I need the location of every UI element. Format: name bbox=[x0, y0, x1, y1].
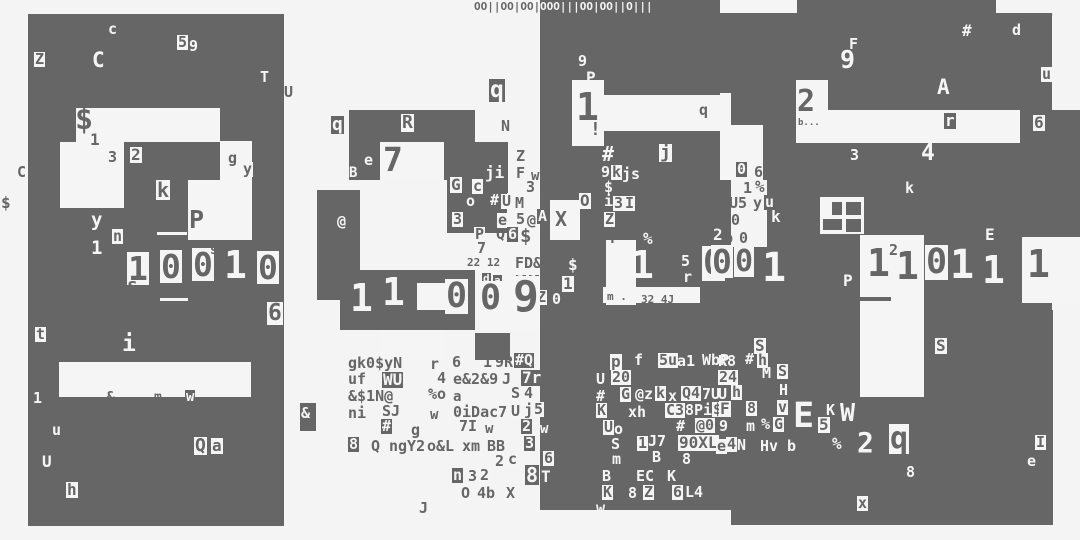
glyph: xh bbox=[628, 405, 646, 420]
glyph: 2 bbox=[479, 468, 490, 483]
glyph: e bbox=[1027, 454, 1036, 469]
dark-block bbox=[859, 297, 891, 301]
glyph: X bbox=[555, 209, 567, 229]
glyph: 6 bbox=[543, 451, 554, 466]
glyph: # bbox=[602, 144, 614, 164]
glyph: 6 bbox=[754, 165, 763, 180]
glyph: B bbox=[652, 450, 661, 465]
glyph: 1 bbox=[382, 273, 405, 311]
glyph: uf bbox=[348, 372, 366, 387]
glyph: 1 bbox=[350, 279, 373, 317]
glyph: 3 bbox=[850, 148, 859, 163]
glyph: m bbox=[746, 419, 755, 434]
glyph: q bbox=[489, 79, 505, 102]
glyph: 5 bbox=[818, 417, 830, 433]
glyph: 0 bbox=[736, 162, 747, 177]
glyph: # bbox=[962, 23, 972, 39]
glyph: 2 bbox=[521, 419, 532, 434]
barcode-text: OOO|||OO|OO||O||| bbox=[540, 1, 653, 12]
glyph: 32 4J bbox=[641, 294, 674, 305]
glyph: 90XL bbox=[678, 435, 719, 451]
glyph: 1 bbox=[631, 246, 654, 284]
glyph: c bbox=[507, 452, 518, 467]
glyph: 3 bbox=[613, 196, 624, 211]
glyph: 4 bbox=[523, 386, 534, 401]
window-pane-rect bbox=[846, 202, 861, 215]
glyph: 6 bbox=[672, 485, 683, 500]
glyph: 0 bbox=[445, 279, 468, 314]
glyph: 1 bbox=[896, 247, 919, 285]
glyph: A bbox=[937, 77, 950, 98]
glyph: & bbox=[301, 406, 310, 421]
glyph: N bbox=[501, 119, 510, 134]
glyph: n bbox=[112, 229, 123, 244]
glyph: 1 bbox=[950, 245, 974, 285]
glyph: 4b bbox=[477, 486, 495, 501]
glyph: t bbox=[766, 226, 778, 246]
glyph: #Q bbox=[514, 353, 534, 368]
glyph: 8 bbox=[906, 465, 915, 480]
glyph: X bbox=[506, 486, 515, 501]
glyph: J7 bbox=[648, 434, 666, 449]
glyph: Q4 bbox=[681, 386, 701, 401]
light-block bbox=[160, 298, 188, 301]
glyph: %o bbox=[428, 387, 446, 402]
glyph: 9 bbox=[512, 276, 540, 319]
glyph: 9 bbox=[719, 419, 728, 434]
glyph: 7I bbox=[459, 419, 477, 434]
glyph: C bbox=[92, 50, 105, 71]
light-block bbox=[417, 283, 448, 310]
glyph: I bbox=[624, 196, 635, 211]
glyph: WU bbox=[382, 372, 403, 388]
glyph: j bbox=[659, 144, 672, 162]
glyph: 8 bbox=[525, 465, 539, 485]
glyph: @ bbox=[526, 213, 537, 228]
glyph: L4 bbox=[685, 485, 703, 500]
glyph: q bbox=[699, 103, 708, 118]
glyph: @0 bbox=[695, 418, 715, 433]
glyph: $ bbox=[568, 257, 578, 273]
glyph: 9 bbox=[578, 54, 587, 69]
glyph: 22 12 bbox=[467, 257, 500, 268]
glyph: k bbox=[156, 180, 170, 200]
glyph: y bbox=[91, 211, 102, 230]
glyph: 1 bbox=[637, 436, 648, 451]
glyph: 2 bbox=[495, 454, 504, 469]
glyph: 5 bbox=[177, 35, 188, 50]
glyph: w bbox=[485, 422, 493, 436]
glyph: w bbox=[430, 408, 438, 422]
glyph: 4 bbox=[921, 142, 935, 165]
glyph: j bbox=[524, 403, 533, 418]
glyph: x bbox=[857, 496, 868, 511]
glyph: 1 bbox=[762, 248, 786, 288]
glyph: s bbox=[127, 277, 138, 295]
glyph: 0 bbox=[734, 247, 754, 277]
glyph: # bbox=[381, 419, 392, 434]
glyph: 1 bbox=[483, 355, 492, 370]
glyph: % bbox=[761, 417, 770, 432]
glyph: 1 bbox=[89, 132, 101, 148]
glyph: f bbox=[634, 353, 643, 368]
glyph: 0 bbox=[711, 245, 733, 278]
glyph: e bbox=[364, 153, 373, 168]
glyph: U bbox=[596, 372, 605, 387]
light-block bbox=[720, 93, 731, 180]
glyph: i bbox=[122, 333, 136, 356]
glyph: 8 bbox=[682, 452, 691, 467]
glyph: % bbox=[755, 179, 765, 195]
glyph: S bbox=[511, 386, 520, 401]
glyph: P bbox=[189, 207, 204, 232]
barcode-text: gk0$yN bbox=[348, 356, 402, 371]
glyph: q bbox=[889, 424, 909, 454]
glyph: FD&A bbox=[515, 256, 551, 271]
glyph: G bbox=[773, 417, 784, 432]
glyph: E bbox=[985, 227, 995, 243]
glyph: 4 bbox=[436, 371, 447, 386]
glyph: Z bbox=[643, 485, 654, 500]
glyph: U bbox=[510, 404, 521, 419]
glyph: P bbox=[842, 273, 854, 289]
glyph: 3 bbox=[468, 469, 477, 484]
glyph: 2 bbox=[797, 87, 815, 117]
glyph: t bbox=[35, 327, 46, 342]
glyph: @z bbox=[635, 387, 653, 402]
glyph: 5u bbox=[658, 353, 678, 368]
glyph: e&2&9 bbox=[453, 372, 498, 387]
glyph: 2 bbox=[857, 429, 874, 457]
glyph: m bbox=[154, 391, 162, 404]
glyph: @ bbox=[337, 214, 346, 229]
glyph: M bbox=[515, 196, 524, 211]
glyph: o&L bbox=[427, 439, 454, 454]
glyph: U bbox=[42, 454, 52, 470]
glyph: K bbox=[667, 469, 676, 484]
glyph: n bbox=[452, 468, 463, 483]
glyph: # bbox=[490, 193, 499, 208]
glyph: 0 bbox=[160, 250, 182, 283]
glyph: R8 bbox=[718, 354, 736, 369]
glyph: h bbox=[731, 385, 742, 400]
glyph: q bbox=[331, 116, 344, 134]
glyph: B bbox=[349, 166, 357, 180]
glyph: h bbox=[66, 482, 78, 498]
glyph: ! bbox=[590, 121, 601, 139]
glyph: k bbox=[905, 181, 914, 196]
glyph: w bbox=[540, 422, 548, 436]
glyph: u bbox=[52, 423, 61, 438]
glyph: 0 bbox=[925, 245, 948, 280]
glyph: 1 bbox=[982, 251, 1005, 289]
glyph: 5 bbox=[681, 254, 690, 269]
glyph: r bbox=[683, 270, 692, 285]
glyph: a bbox=[211, 438, 223, 454]
glyph: R bbox=[401, 114, 414, 132]
glyph: 1 bbox=[562, 276, 574, 292]
glyph: m bbox=[612, 452, 621, 467]
glyph: 5 bbox=[516, 212, 525, 227]
glyph: S bbox=[935, 338, 947, 354]
glyph: d bbox=[1012, 23, 1021, 38]
glyph: b bbox=[787, 439, 796, 454]
glyph: 3 bbox=[452, 212, 463, 227]
glyph: T bbox=[541, 469, 551, 485]
glyph: 3 bbox=[526, 180, 535, 195]
glyph: I bbox=[1035, 435, 1046, 450]
glyph: F bbox=[768, 165, 777, 180]
glyph: F bbox=[516, 166, 525, 181]
light-block bbox=[157, 232, 187, 235]
glyph: ngY2 bbox=[389, 439, 425, 454]
glyph: 9R bbox=[495, 355, 513, 370]
glyph: & bbox=[106, 390, 115, 405]
glyph: J bbox=[419, 501, 428, 516]
glyph: v bbox=[1044, 11, 1053, 26]
glyph: Z bbox=[604, 212, 615, 227]
glyph: 20 bbox=[611, 370, 631, 385]
glyph: v bbox=[777, 400, 788, 415]
glyph: I bbox=[540, 229, 549, 244]
glyph: 6 bbox=[452, 355, 461, 370]
glyph: S bbox=[777, 364, 788, 379]
glyph: % bbox=[643, 231, 653, 247]
glyph: T bbox=[260, 70, 269, 85]
glyph: 5 bbox=[533, 402, 544, 417]
glyph: y bbox=[753, 196, 762, 211]
glyph: w bbox=[185, 390, 195, 404]
glyph: U5 bbox=[729, 196, 747, 211]
glyph: 0 bbox=[552, 292, 561, 307]
glyph: 7 bbox=[477, 241, 486, 256]
glyph: k bbox=[770, 209, 782, 225]
glyph: G bbox=[450, 177, 462, 193]
glyph: r bbox=[944, 113, 956, 129]
glyph: ni bbox=[348, 406, 366, 421]
glyph: 0 bbox=[257, 251, 279, 284]
glyph: Z bbox=[34, 52, 45, 67]
glyph: 3 bbox=[108, 150, 117, 165]
glyph: U bbox=[284, 85, 293, 100]
glyph: 7 bbox=[383, 143, 403, 176]
glyph: Q bbox=[371, 439, 380, 454]
glyph: c bbox=[108, 22, 117, 37]
light-block bbox=[604, 95, 731, 131]
glyph: O bbox=[461, 486, 470, 501]
glyph: 1 bbox=[224, 246, 247, 284]
glyph: U bbox=[603, 420, 614, 435]
glyph: k bbox=[655, 386, 666, 401]
glyph: F bbox=[610, 231, 619, 246]
glyph: B bbox=[602, 469, 611, 484]
glyph: 6 bbox=[507, 227, 518, 242]
glyph: # bbox=[676, 419, 685, 434]
glyph: g bbox=[411, 423, 420, 438]
glyph: 9 bbox=[840, 47, 855, 72]
glyph: # bbox=[745, 352, 754, 367]
glyph: w bbox=[596, 501, 605, 516]
glyph: U bbox=[501, 194, 512, 209]
glyph: M bbox=[762, 366, 771, 381]
glyph: H bbox=[779, 383, 788, 398]
glyph: G bbox=[620, 387, 631, 402]
glyph: 0 bbox=[731, 213, 740, 228]
glyph: 4 bbox=[726, 437, 737, 452]
glyph: P bbox=[586, 70, 596, 86]
glyph: 1 bbox=[1027, 245, 1050, 283]
glyph: y bbox=[242, 162, 253, 177]
glyph: 0 bbox=[479, 281, 502, 316]
glyph: % bbox=[832, 436, 842, 452]
glyph: Z bbox=[516, 149, 525, 164]
glyph: 9 bbox=[189, 39, 198, 54]
glyph: o bbox=[466, 194, 475, 209]
glyph: 6 bbox=[1033, 115, 1045, 131]
window-pane-rect bbox=[823, 219, 842, 230]
glyph: $ bbox=[1, 195, 11, 211]
glyph: W bbox=[840, 400, 855, 425]
glyph: 1 bbox=[867, 244, 890, 282]
window-pane-rect bbox=[846, 219, 861, 232]
glyph: b... bbox=[798, 119, 820, 128]
glyph: J bbox=[502, 372, 511, 387]
glyph: 6 bbox=[267, 302, 283, 325]
glyph: 2 bbox=[712, 227, 724, 243]
glyph: Q bbox=[194, 437, 207, 455]
glyph: C3 bbox=[665, 403, 685, 418]
glyph: s bbox=[210, 244, 218, 257]
glyph: 1 bbox=[91, 239, 102, 258]
glyph: 8 bbox=[628, 486, 637, 501]
glyph: a bbox=[453, 390, 461, 404]
light-block bbox=[828, 110, 1020, 143]
glyph: 1 bbox=[604, 248, 627, 286]
glyph: N bbox=[737, 438, 746, 453]
glyph: $ bbox=[520, 227, 531, 246]
glyph: C bbox=[17, 165, 26, 180]
glyph: 6 bbox=[779, 181, 788, 196]
glyph: m . bbox=[607, 291, 627, 302]
glyph: 1 bbox=[33, 391, 42, 406]
glyph: K bbox=[602, 485, 613, 500]
glyph: js bbox=[622, 167, 640, 182]
glyph: 2 bbox=[130, 147, 142, 163]
glyph: F bbox=[719, 401, 731, 417]
glyph: EC bbox=[636, 469, 654, 484]
glyph: 8 bbox=[348, 437, 359, 452]
glyph: A bbox=[537, 209, 548, 224]
glyph: g bbox=[228, 151, 237, 166]
window-pane-rect bbox=[832, 202, 842, 215]
glyph: xm bbox=[462, 439, 480, 454]
glyph: K bbox=[596, 403, 607, 418]
glyph: Q bbox=[496, 227, 505, 242]
glyph: O bbox=[579, 193, 591, 209]
glyph: u bbox=[1041, 67, 1052, 82]
light-block bbox=[720, 0, 797, 13]
glitch-art-canvas: cC59ZTU$132gyC$kyn1P1s00s106ti@qBe1&mwuQ… bbox=[0, 0, 1080, 540]
glyph: E bbox=[793, 399, 814, 434]
glyph: 3 bbox=[524, 436, 535, 451]
glyph: ji bbox=[485, 165, 504, 181]
glyph: 8 bbox=[746, 401, 757, 416]
glyph: Hv bbox=[760, 439, 778, 454]
glyph: a1 bbox=[677, 354, 695, 369]
